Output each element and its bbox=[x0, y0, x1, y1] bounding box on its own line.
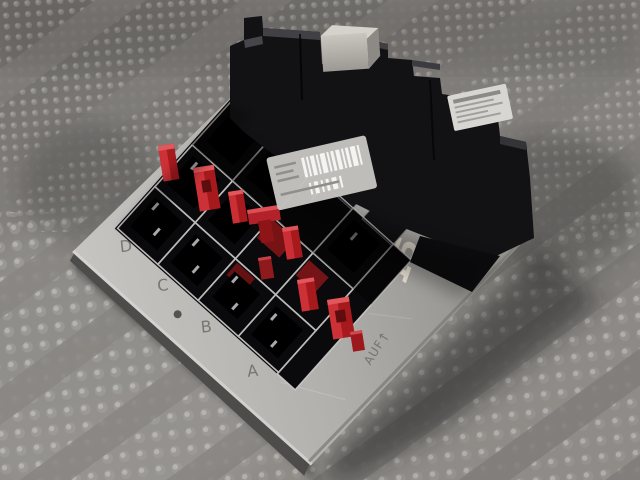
plate-letter-a: A bbox=[246, 361, 260, 381]
red-tab-notch bbox=[335, 309, 347, 322]
plate-letter-b: B bbox=[200, 317, 214, 337]
photo-canvas: D C B A AUF ↑ E 15 bbox=[0, 0, 640, 480]
red-tab-notch bbox=[201, 179, 212, 192]
plate-letter-c: C bbox=[156, 275, 170, 295]
relay-front-face bbox=[321, 33, 369, 72]
photo-fusebox-on-mat: D C B A AUF ↑ E 15 bbox=[0, 0, 640, 480]
relay-cube bbox=[320, 22, 381, 72]
